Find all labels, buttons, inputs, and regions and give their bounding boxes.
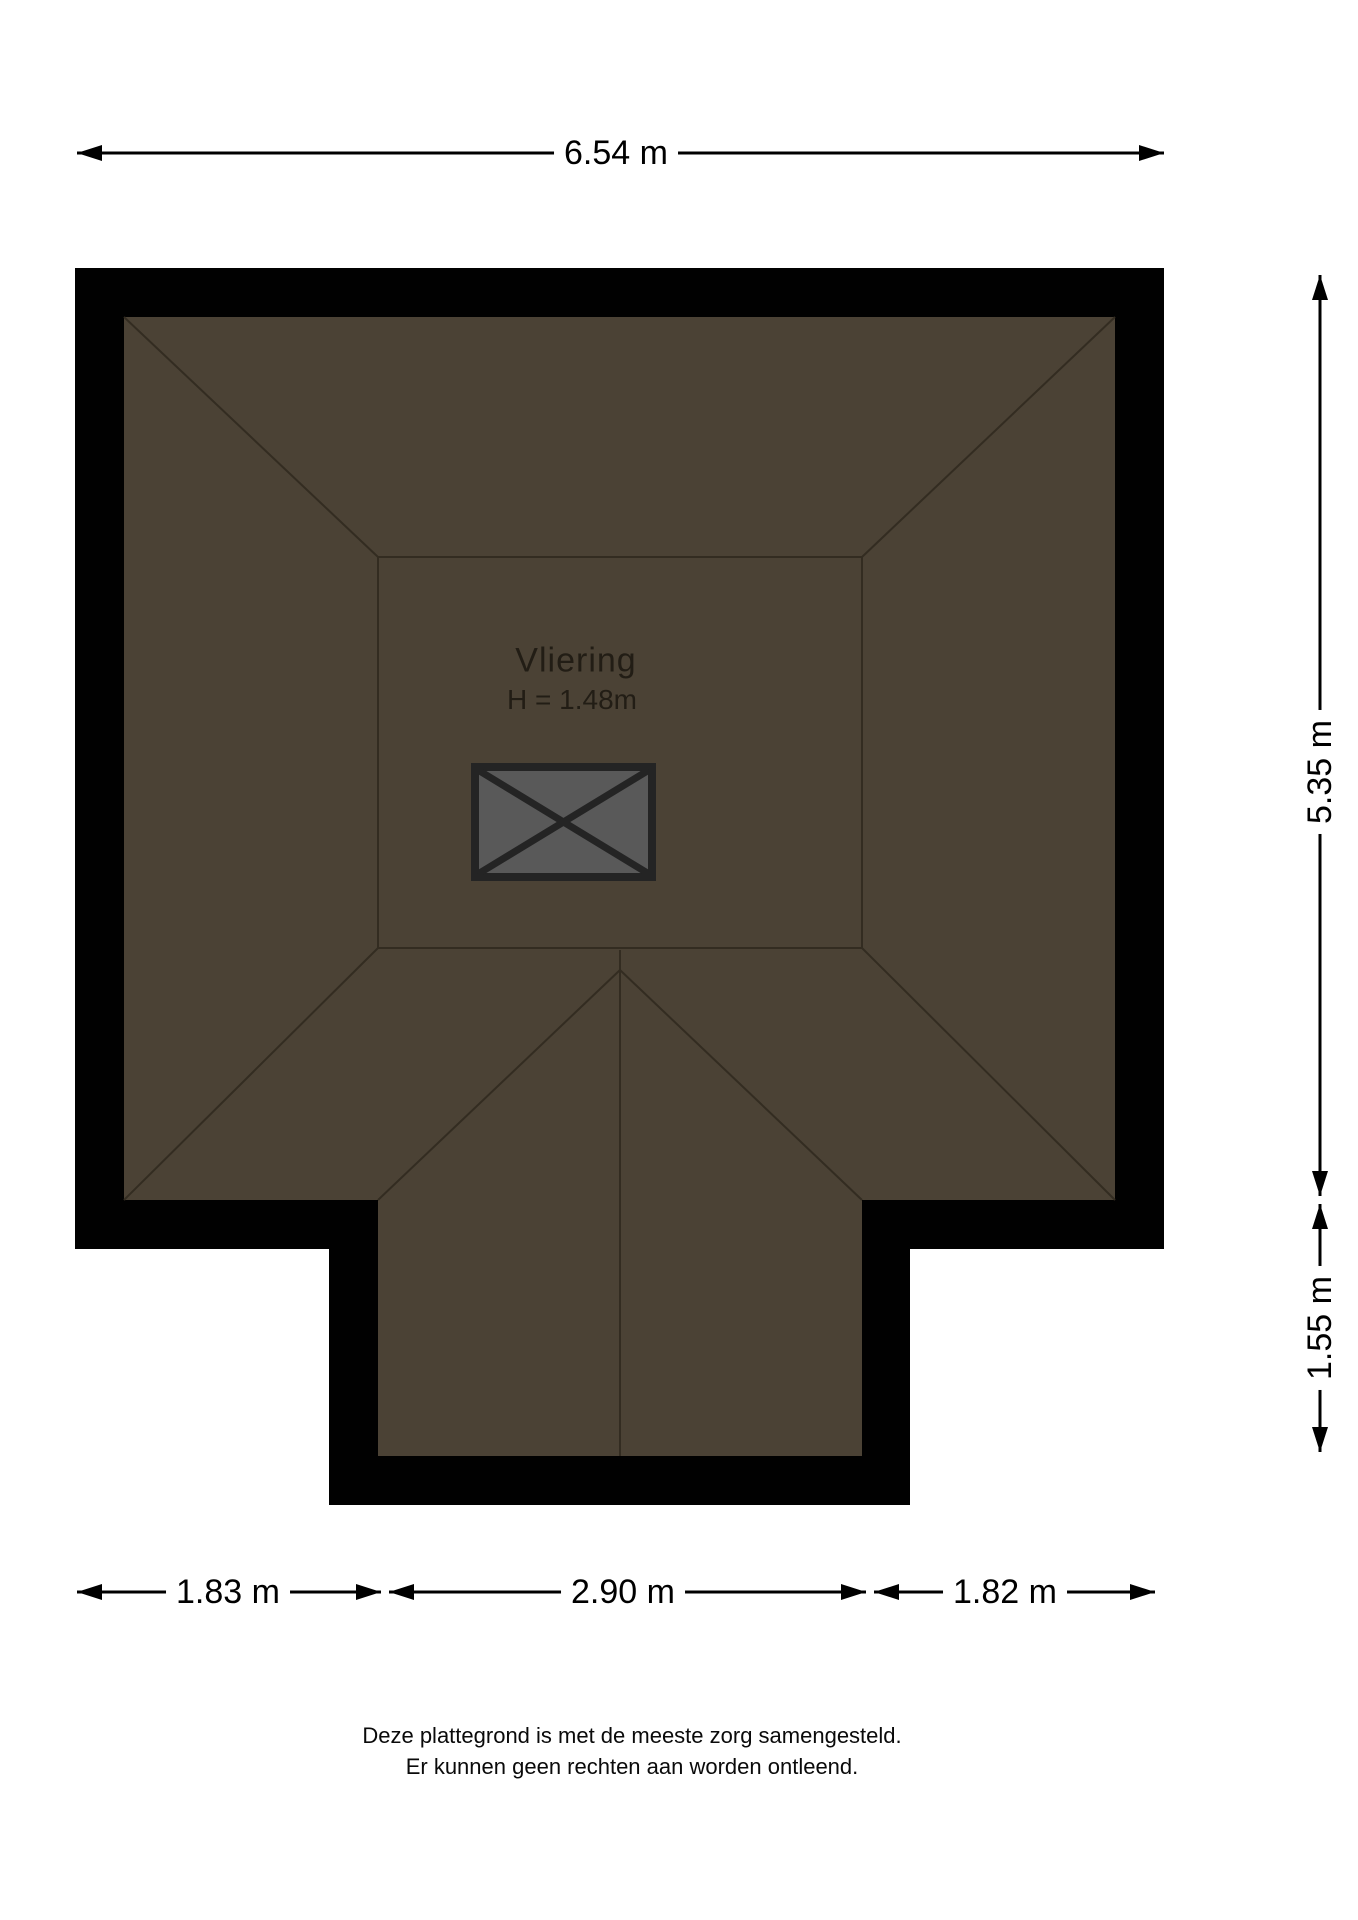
arrowhead-right <box>356 1584 381 1600</box>
arrowhead-down <box>1312 1171 1328 1196</box>
arrowhead-down <box>1312 1427 1328 1452</box>
room-name-label: Vliering <box>515 642 636 681</box>
dimension-label-upper-height: 5.35 m <box>1300 710 1340 834</box>
disclaimer-line-2: Er kunnen geen rechten aan worden ontlee… <box>362 1751 901 1782</box>
arrowhead-left <box>874 1584 899 1600</box>
arrowhead-left <box>389 1584 414 1600</box>
dimension-label-bottom-right: 1.82 m <box>943 1572 1067 1612</box>
dimension-label-bottom-left: 1.83 m <box>166 1572 290 1612</box>
floorplan-drawing <box>0 0 1358 1920</box>
arrowhead-right <box>1139 145 1164 161</box>
disclaimer-line-1: Deze plattegrond is met de meeste zorg s… <box>362 1720 901 1751</box>
arrowhead-up <box>1312 275 1328 300</box>
room-height-label: H = 1.48m <box>507 684 637 716</box>
arrowhead-up <box>1312 1204 1328 1229</box>
arrowhead-right <box>1130 1584 1155 1600</box>
arrowhead-left <box>77 145 102 161</box>
floorplan-page: 6.54 m 5.35 m 1.55 m 1.83 m 2.90 m 1.82 … <box>0 0 1358 1920</box>
dimension-label-lower-height: 1.55 m <box>1300 1266 1340 1390</box>
arrowhead-left <box>77 1584 102 1600</box>
arrowhead-right <box>841 1584 866 1600</box>
dimension-label-total-width: 6.54 m <box>554 133 678 173</box>
dimension-label-bottom-middle: 2.90 m <box>561 1572 685 1612</box>
disclaimer-note: Deze plattegrond is met de meeste zorg s… <box>362 1720 901 1782</box>
loft-hatch-symbol <box>475 767 652 877</box>
